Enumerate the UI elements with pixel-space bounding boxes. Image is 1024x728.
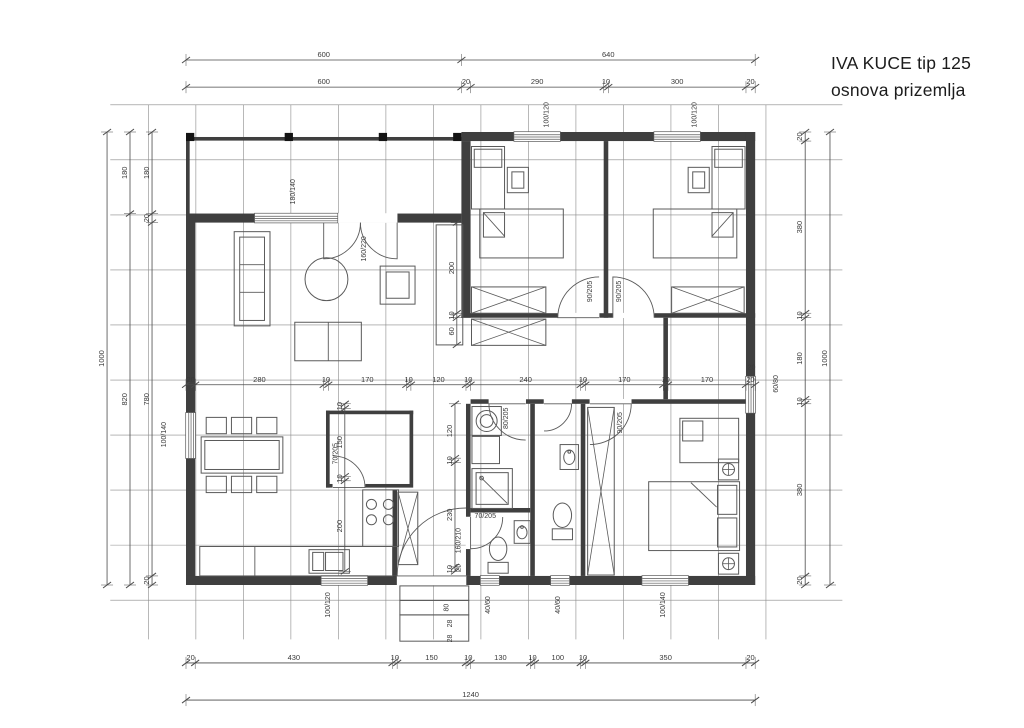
- wall: [599, 313, 613, 318]
- furniture: [400, 586, 469, 600]
- dim-value: 1240: [462, 690, 479, 699]
- dim-value: 120: [445, 425, 454, 438]
- door-opening: [613, 313, 655, 318]
- dim-value: 20: [746, 375, 754, 384]
- plan-subtitle: osnova prizemlja: [831, 77, 1021, 104]
- fixture-circle: [383, 499, 393, 509]
- dim-value: 10: [579, 375, 587, 384]
- terrace-post: [379, 133, 387, 141]
- size-label: 28: [447, 634, 454, 642]
- window: [514, 132, 561, 142]
- dim-value: 820: [120, 393, 129, 406]
- size-label: 160/220: [361, 236, 368, 261]
- size-label: 80: [444, 604, 451, 612]
- size-label: 90/205: [587, 281, 594, 303]
- size-label: 20: [455, 564, 462, 572]
- wall: [326, 411, 330, 488]
- furniture: [436, 225, 463, 345]
- dim-value: 430: [288, 653, 301, 662]
- furniture: [472, 436, 500, 463]
- furniture: [718, 518, 737, 547]
- door-swing: [471, 517, 503, 549]
- dim-value: 200: [335, 520, 344, 533]
- furniture: [201, 437, 283, 473]
- fixture-circle: [366, 515, 376, 525]
- dim-value: 1000: [97, 350, 106, 367]
- dim-value: 60: [447, 327, 456, 335]
- door-opening: [397, 576, 466, 586]
- wall: [746, 132, 755, 585]
- fixture-circle: [476, 411, 497, 432]
- window: [321, 576, 368, 586]
- dim-value: 300: [671, 77, 684, 86]
- door-swing: [324, 223, 361, 259]
- door-opening: [466, 517, 471, 549]
- wall: [654, 313, 755, 318]
- wall: [530, 404, 535, 576]
- furniture: [400, 600, 469, 614]
- dim-value: 20: [795, 576, 804, 584]
- dim-value: 20: [462, 77, 470, 86]
- furniture: [688, 167, 709, 192]
- dim-value: 10: [335, 474, 344, 482]
- wall: [410, 411, 414, 484]
- dim-value: 170: [618, 375, 631, 384]
- furniture: [480, 209, 564, 258]
- terrace-post: [453, 133, 461, 141]
- wall: [326, 484, 333, 488]
- furniture: [400, 615, 469, 641]
- window: [642, 576, 689, 586]
- furniture: [231, 417, 251, 433]
- size-label: 180/140: [290, 179, 297, 204]
- wall: [471, 399, 489, 404]
- dim-value: 130: [494, 653, 507, 662]
- size-label: 100/120: [544, 102, 551, 127]
- dim-value: 350: [659, 653, 672, 662]
- dim-value: 10: [661, 375, 669, 384]
- size-label: 20: [748, 364, 756, 371]
- window: [654, 132, 701, 142]
- detail-line: [483, 213, 504, 237]
- wall: [604, 141, 609, 318]
- fixture-ellipse: [553, 503, 571, 527]
- detail-line: [712, 213, 733, 237]
- size-label: 100/120: [691, 102, 698, 127]
- window: [255, 213, 338, 223]
- dim-value: 170: [701, 375, 714, 384]
- dim-value: 20: [186, 653, 194, 662]
- dim-value: 380: [795, 484, 804, 497]
- dim-value: 10: [464, 375, 472, 384]
- furniture: [507, 167, 528, 192]
- fixture-circle: [366, 499, 376, 509]
- wall: [572, 399, 590, 404]
- furniture: [257, 417, 277, 433]
- dim-value: 10: [335, 402, 344, 410]
- window: [480, 576, 499, 586]
- dim-value: 10: [322, 375, 330, 384]
- wall: [466, 549, 471, 576]
- dim-value: 600: [317, 77, 330, 86]
- door-swing: [590, 404, 631, 445]
- size-label: 40/60: [555, 596, 562, 614]
- furniture: [313, 552, 324, 570]
- dim-value: 20: [746, 77, 754, 86]
- fixture-ellipse: [564, 450, 575, 464]
- dim-value: 10: [445, 456, 454, 464]
- size-label: 100/140: [161, 422, 168, 447]
- wall: [365, 484, 413, 488]
- furniture: [718, 485, 737, 514]
- dim-value: 600: [317, 50, 330, 59]
- title-block: IVA KUCE tip 125 osnova prizemlja: [831, 50, 1021, 104]
- size-label: 70/205: [332, 443, 339, 465]
- furniture: [512, 172, 524, 188]
- dim-value: 100: [552, 653, 565, 662]
- size-label: 70/205: [475, 513, 497, 520]
- furniture: [474, 149, 502, 167]
- furniture: [206, 417, 226, 433]
- dim-value: 200: [447, 262, 456, 275]
- dim-value: 10: [445, 565, 454, 573]
- size-label: 90/205: [616, 281, 623, 303]
- dim-value: 20: [142, 576, 151, 584]
- dim-value: 170: [361, 375, 374, 384]
- furniture: [200, 546, 393, 575]
- dim-value: 20: [142, 214, 151, 222]
- window: [186, 413, 196, 459]
- wall: [186, 214, 195, 585]
- size-label: 100/140: [660, 592, 667, 617]
- furniture: [205, 440, 279, 469]
- plan-title: IVA KUCE tip 125: [831, 50, 1021, 77]
- wall: [581, 404, 586, 576]
- page: 6006406002029010300201000180820180207802…: [0, 0, 1024, 728]
- fixture-circle: [383, 515, 393, 525]
- floorplan-svg: 6006406002029010300201000180820180207802…: [0, 0, 1024, 728]
- dim-value: 20: [186, 375, 194, 384]
- dim-value: 240: [519, 375, 532, 384]
- dim-value: 120: [432, 375, 445, 384]
- dim-value: 10: [464, 653, 472, 662]
- dim-value: 290: [531, 77, 544, 86]
- furniture: [386, 272, 409, 298]
- dim-value: 20: [795, 132, 804, 140]
- dim-value: 150: [425, 653, 438, 662]
- dim-value: 380: [795, 221, 804, 234]
- furniture: [326, 552, 343, 570]
- dim-value: 780: [142, 393, 151, 406]
- door-opening: [489, 399, 526, 404]
- dim-value: 10: [602, 77, 610, 86]
- fixture-circle: [305, 258, 348, 301]
- wall: [526, 399, 544, 404]
- furniture: [552, 529, 572, 540]
- furniture: [653, 209, 737, 258]
- dim-value: 640: [602, 50, 615, 59]
- furniture: [715, 149, 743, 167]
- dim-value: 10: [447, 311, 456, 319]
- size-label: 90/205: [617, 412, 624, 434]
- door-opening: [544, 399, 572, 404]
- furniture: [488, 562, 508, 573]
- door-swing: [544, 404, 572, 431]
- dim-value: 180: [142, 167, 151, 180]
- terrace-post: [285, 133, 293, 141]
- dim-value: 10: [795, 311, 804, 319]
- dim-value: 10: [528, 653, 536, 662]
- size-label: 28: [447, 620, 454, 628]
- wall: [466, 404, 471, 517]
- dim-value: 10: [404, 375, 412, 384]
- size-label: 80/205: [503, 407, 510, 429]
- size-label: 60/80: [773, 375, 780, 393]
- fixture-circle: [568, 450, 571, 453]
- furniture: [693, 172, 705, 188]
- size-label: 100/120: [325, 592, 332, 617]
- terrace-post: [186, 133, 194, 141]
- wall: [461, 132, 755, 141]
- door-opening: [557, 313, 599, 318]
- dim-value: 230: [445, 509, 454, 522]
- dim-value: 10: [579, 653, 587, 662]
- wall: [461, 313, 557, 318]
- detail-line: [691, 483, 717, 507]
- furniture: [649, 482, 740, 551]
- dim-value: 1000: [820, 350, 829, 367]
- dim-value: 280: [253, 375, 266, 384]
- furniture: [683, 421, 703, 441]
- dim-value: 10: [795, 397, 804, 405]
- dim-value: 180: [120, 167, 129, 180]
- dim-value: 20: [746, 653, 754, 662]
- fixtures-layer: [240, 213, 735, 576]
- window: [551, 576, 570, 586]
- wall: [631, 399, 755, 404]
- wall: [186, 137, 461, 141]
- size-label: 160/210: [455, 528, 462, 553]
- size-label: 40/60: [485, 596, 492, 614]
- door-opening: [590, 399, 632, 404]
- dim-value: 10: [391, 653, 399, 662]
- dim-value: 180: [795, 352, 804, 365]
- wall: [186, 137, 190, 214]
- furniture: [712, 146, 745, 209]
- furniture: [471, 146, 504, 209]
